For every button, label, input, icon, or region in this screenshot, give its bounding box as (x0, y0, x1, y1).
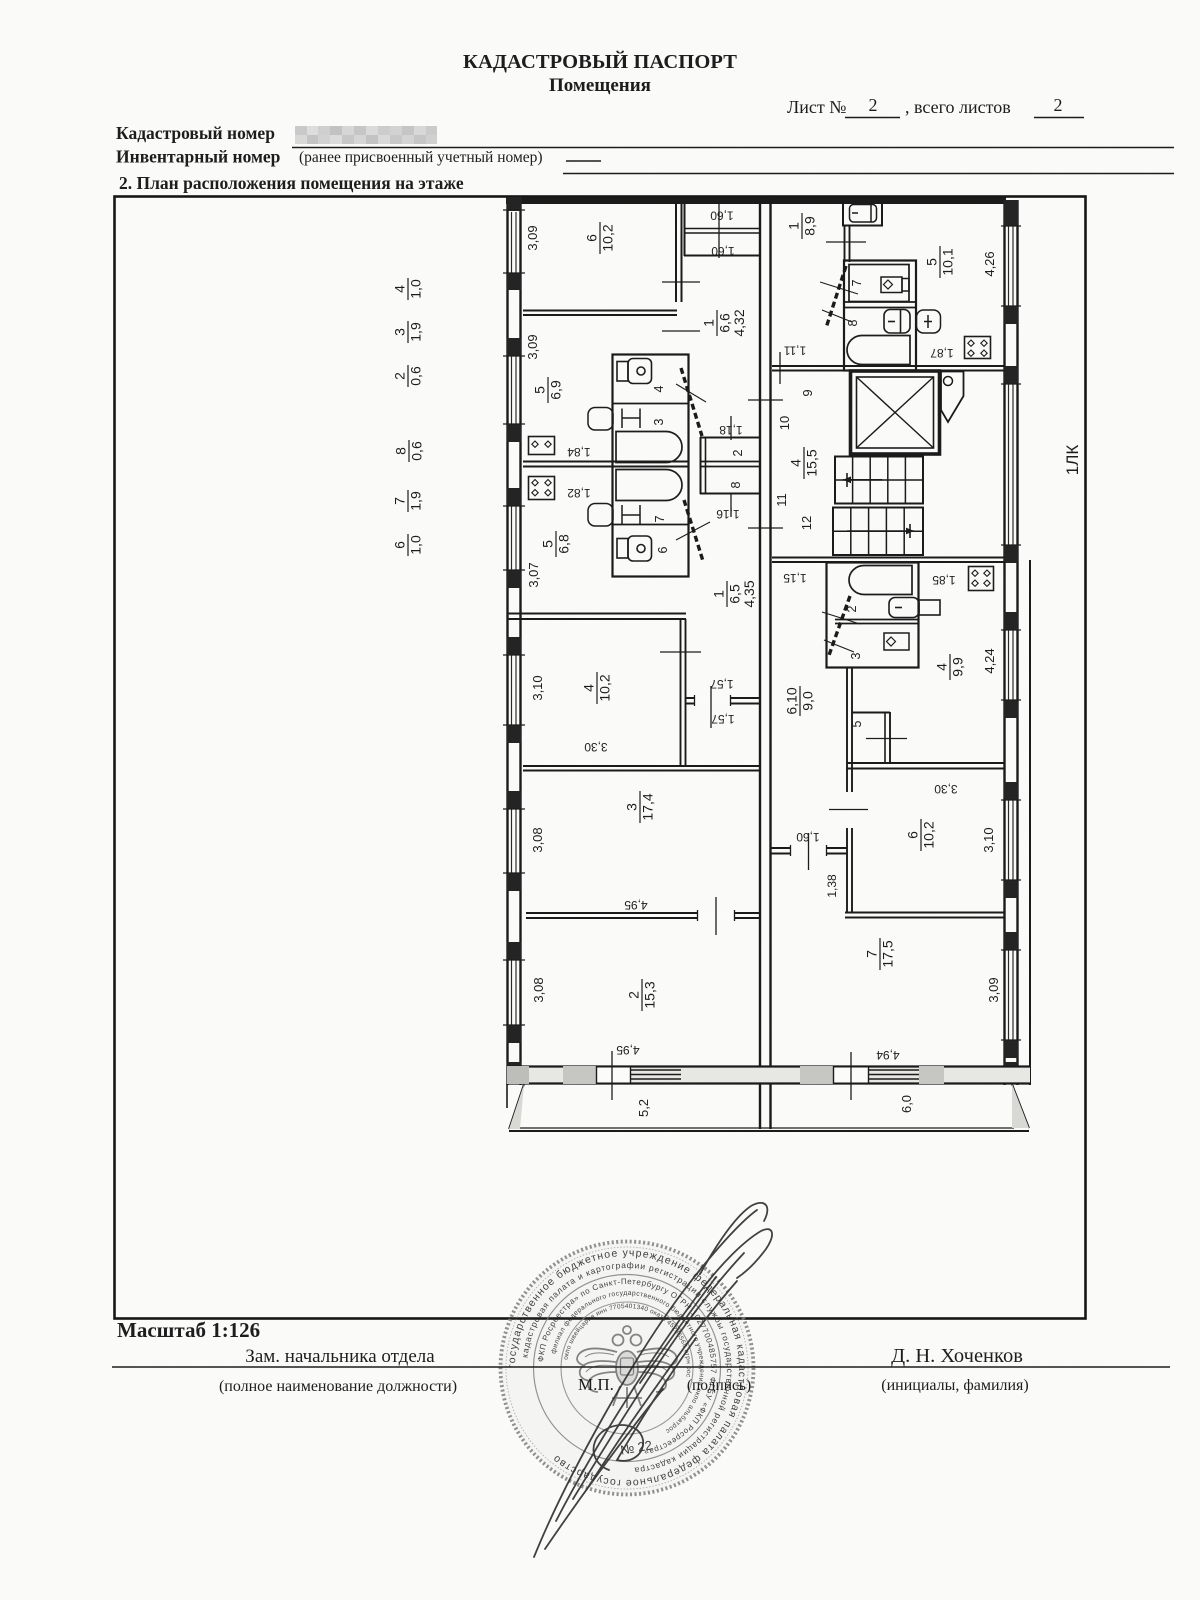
svg-text:3,08: 3,08 (531, 977, 546, 1002)
svg-text:6: 6 (656, 546, 670, 553)
svg-text:8: 8 (729, 481, 743, 488)
svg-text:6,0: 6,0 (899, 1095, 914, 1113)
svg-text:7: 7 (392, 497, 408, 505)
svg-text:Кадастровый номер: Кадастровый номер (116, 123, 275, 143)
svg-text:1,16: 1,16 (716, 507, 740, 521)
svg-text:1,60: 1,60 (711, 244, 735, 258)
svg-text:4,24: 4,24 (982, 648, 997, 673)
svg-text:, всего листов: , всего листов (905, 97, 1011, 117)
svg-text:4: 4 (392, 285, 408, 293)
svg-text:3,09: 3,09 (986, 977, 1001, 1002)
svg-text:1,18: 1,18 (719, 423, 743, 437)
svg-text:4,26: 4,26 (982, 251, 997, 276)
svg-text:8: 8 (846, 319, 860, 326)
svg-text:4,32: 4,32 (731, 309, 747, 336)
svg-text:(ранее присвоенный учетный ном: (ранее присвоенный учетный номер) (299, 149, 543, 166)
svg-text:5,2: 5,2 (636, 1099, 651, 1117)
svg-text:10,2: 10,2 (600, 224, 616, 251)
svg-text:10,1: 10,1 (940, 248, 956, 275)
svg-text:1,57: 1,57 (711, 712, 735, 726)
svg-text:2: 2 (731, 449, 745, 456)
svg-text:11: 11 (774, 493, 789, 507)
svg-text:0,6: 0,6 (409, 441, 425, 461)
svg-text:1,11: 1,11 (783, 344, 806, 358)
svg-text:15,3: 15,3 (642, 981, 658, 1008)
svg-text:Помещения: Помещения (549, 75, 651, 96)
svg-text:1,9: 1,9 (408, 322, 424, 342)
svg-text:7: 7 (864, 950, 880, 958)
svg-text:15,5: 15,5 (804, 449, 820, 476)
svg-text:3,30: 3,30 (934, 782, 958, 796)
svg-text:8: 8 (393, 447, 409, 455)
svg-text:6: 6 (584, 234, 600, 242)
svg-text:КАДАСТРОВЫЙ ПАСПОРТ: КАДАСТРОВЫЙ ПАСПОРТ (463, 50, 737, 73)
svg-text:4,95: 4,95 (624, 898, 648, 912)
svg-text:(полное наименование должности: (полное наименование должности) (219, 1378, 457, 1395)
svg-text:3,10: 3,10 (981, 827, 996, 852)
svg-text:(инициалы, фамилия): (инициалы, фамилия) (881, 1377, 1029, 1394)
svg-text:Зам. начальника отдела: Зам. начальника отдела (245, 1346, 435, 1367)
svg-text:7: 7 (653, 515, 667, 522)
svg-text:М.П.: М.П. (578, 1375, 614, 1394)
svg-text:1ЛК: 1ЛК (1063, 445, 1082, 476)
svg-text:4,94: 4,94 (876, 1048, 900, 1062)
svg-text:9,0: 9,0 (800, 691, 816, 711)
svg-text:4: 4 (652, 385, 666, 392)
svg-text:1,15: 1,15 (783, 571, 807, 585)
svg-text:1,85: 1,85 (932, 573, 956, 587)
svg-text:1,60: 1,60 (710, 209, 734, 223)
svg-text:2: 2 (626, 991, 642, 999)
svg-text:4: 4 (581, 684, 597, 692)
svg-text:1,82: 1,82 (567, 486, 591, 500)
svg-text:12: 12 (799, 516, 814, 530)
svg-text:4,95: 4,95 (616, 1043, 640, 1057)
svg-text:0,6: 0,6 (408, 366, 424, 386)
svg-text:3,09: 3,09 (525, 334, 540, 359)
svg-text:10,2: 10,2 (921, 821, 937, 848)
svg-text:3,08: 3,08 (530, 827, 545, 852)
svg-text:7: 7 (850, 279, 864, 286)
svg-text:1,0: 1,0 (408, 535, 424, 555)
svg-text:6: 6 (905, 831, 921, 839)
svg-text:1,38: 1,38 (825, 874, 839, 898)
svg-text:2: 2 (392, 372, 408, 380)
svg-text:9,9: 9,9 (950, 657, 966, 677)
svg-text:17,5: 17,5 (880, 940, 896, 967)
svg-text:3: 3 (652, 418, 666, 425)
svg-text:4: 4 (934, 663, 950, 671)
svg-text:5: 5 (540, 540, 556, 548)
svg-text:9: 9 (800, 389, 815, 396)
svg-text:6,8: 6,8 (556, 534, 572, 554)
svg-text:2. План расположения помещения: 2. План расположения помещения на этаже (119, 173, 464, 193)
svg-text:4: 4 (788, 459, 804, 467)
svg-text:Инвентарный номер: Инвентарный номер (116, 147, 281, 167)
svg-text:Д. Н. Хоченков: Д. Н. Хоченков (891, 1345, 1023, 1367)
svg-text:3,30: 3,30 (584, 740, 608, 754)
svg-text:3: 3 (392, 328, 408, 336)
svg-text:10,2: 10,2 (597, 674, 613, 701)
svg-text:1: 1 (711, 590, 727, 598)
svg-text:Лист №: Лист № (787, 97, 846, 117)
svg-text:3,07: 3,07 (526, 562, 541, 587)
svg-text:1,57: 1,57 (710, 677, 734, 691)
svg-text:Масштаб 1:126: Масштаб 1:126 (117, 1318, 260, 1342)
svg-text:(подпись): (подпись) (687, 1377, 751, 1394)
svg-text:1: 1 (786, 222, 802, 230)
svg-text:6,9: 6,9 (548, 380, 564, 400)
svg-text:1: 1 (701, 319, 717, 327)
svg-text:1,9: 1,9 (408, 491, 424, 511)
svg-text:1,60: 1,60 (796, 830, 820, 844)
svg-text:5: 5 (850, 720, 864, 727)
svg-text:2: 2 (1054, 95, 1063, 115)
svg-text:8,9: 8,9 (802, 216, 818, 236)
svg-text:1,87: 1,87 (930, 346, 954, 360)
svg-text:2: 2 (845, 605, 859, 612)
svg-text:17,4: 17,4 (640, 793, 656, 820)
svg-text:3,09: 3,09 (525, 225, 540, 250)
svg-text:1,84: 1,84 (567, 445, 591, 459)
svg-text:4,35: 4,35 (741, 580, 757, 607)
svg-text:6,10: 6,10 (784, 687, 800, 714)
svg-text:2: 2 (869, 95, 878, 115)
svg-text:6: 6 (392, 541, 408, 549)
svg-text:5: 5 (532, 386, 548, 394)
svg-text:3,10: 3,10 (530, 675, 545, 700)
svg-text:10: 10 (777, 416, 792, 430)
svg-text:1,0: 1,0 (408, 279, 424, 299)
svg-text:3: 3 (624, 803, 640, 811)
svg-text:3: 3 (849, 652, 863, 659)
svg-text:5: 5 (924, 258, 940, 266)
